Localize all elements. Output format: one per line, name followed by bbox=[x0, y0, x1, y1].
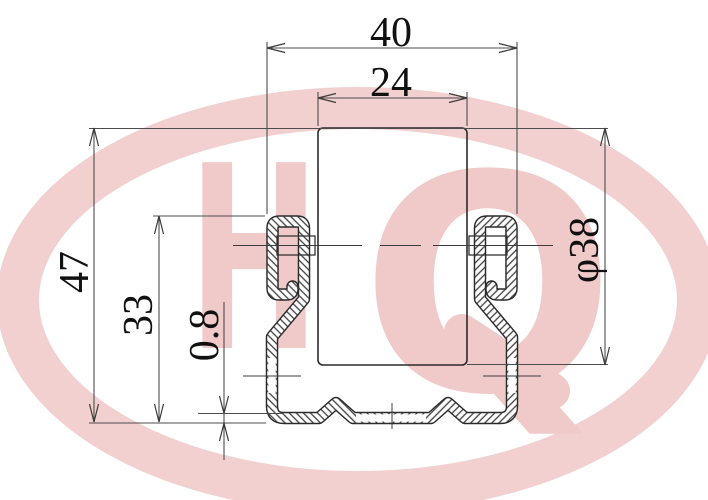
dimension-label-overall-width: 40 bbox=[370, 10, 412, 56]
technical-drawing-page: H Q 40 24 bbox=[0, 0, 708, 500]
drawing-canvas: H Q 40 24 bbox=[0, 0, 708, 500]
dimension-label-overall-height: 47 bbox=[52, 251, 98, 293]
bottom-slot-hole bbox=[356, 414, 426, 421]
dimension-label-pipe-diameter: φ38 bbox=[562, 217, 608, 283]
dimension-label-hook-height: 33 bbox=[116, 294, 162, 336]
dimension-label-material-thickness: 0.8 bbox=[182, 309, 228, 362]
dimension-label-opening-width: 24 bbox=[370, 60, 412, 106]
